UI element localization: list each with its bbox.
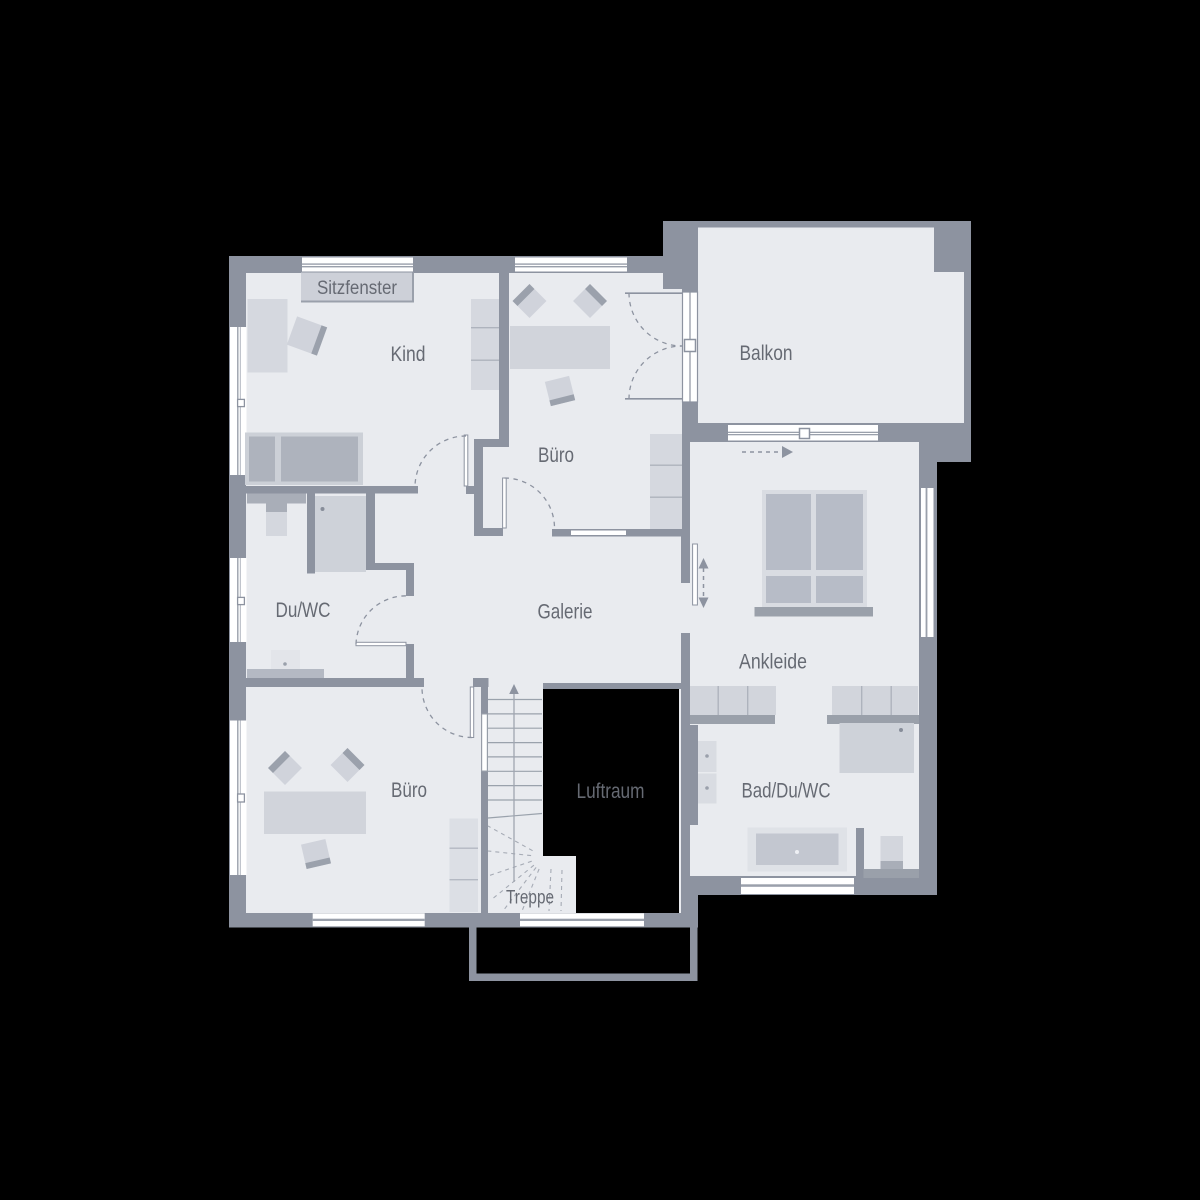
svg-text:Sitzfenster: Sitzfenster	[317, 277, 397, 299]
svg-text:Bad/Du/WC: Bad/Du/WC	[742, 780, 831, 803]
svg-text:Büro: Büro	[538, 444, 574, 467]
svg-text:Ankleide: Ankleide	[739, 651, 807, 674]
svg-text:Du/WC: Du/WC	[276, 599, 331, 622]
svg-text:Luftraum: Luftraum	[577, 780, 645, 803]
svg-text:Galerie: Galerie	[538, 601, 593, 624]
svg-text:Büro: Büro	[391, 779, 427, 802]
svg-text:Treppe: Treppe	[506, 887, 554, 909]
svg-text:Kind: Kind	[391, 343, 426, 366]
svg-text:Balkon: Balkon	[740, 342, 793, 365]
